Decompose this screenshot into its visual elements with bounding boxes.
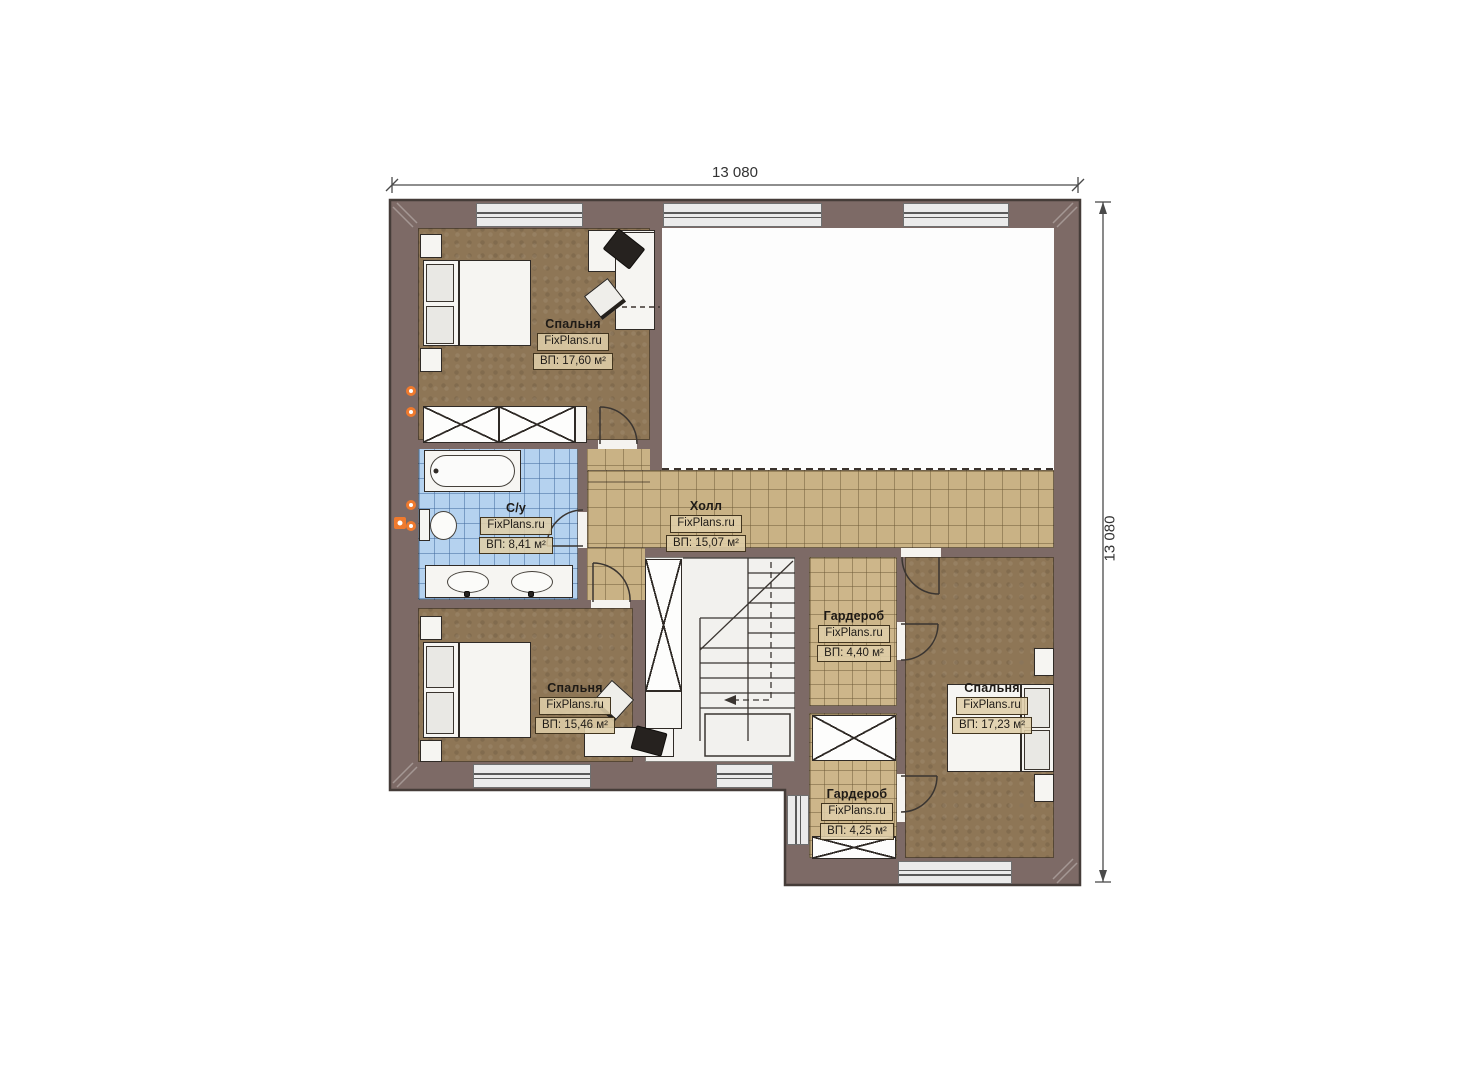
wall — [809, 548, 901, 557]
bed-blanket-line — [458, 643, 460, 737]
wall — [578, 548, 587, 608]
toilet-tank — [419, 509, 430, 541]
bathtub-basin — [430, 455, 515, 487]
door-opening — [598, 440, 637, 449]
floor-plan: 13 080 13 080 Спальня FixPlans.ru ВП: 17… — [0, 0, 1473, 1080]
wall — [578, 447, 587, 512]
shelf — [645, 691, 682, 729]
door-opening — [901, 548, 941, 557]
wardrobe-cabinet-icon — [645, 559, 682, 691]
sink — [511, 571, 553, 593]
brand-badge: FixPlans.ru — [539, 697, 611, 715]
room-label-wardrobe-upper: Гардероб FixPlans.ru ВП: 4,40 м² — [794, 609, 914, 662]
room-area: ВП: 17,60 м² — [533, 353, 613, 371]
room-label-wardrobe-lower: Гардероб FixPlans.ru ВП: 4,25 м² — [797, 787, 917, 840]
brand-badge: FixPlans.ru — [818, 625, 890, 643]
bed-pillow — [1024, 730, 1050, 770]
wall — [637, 440, 662, 449]
room-label-hall: Холл FixPlans.ru ВП: 15,07 м² — [646, 499, 766, 552]
room-label-bedroom-bottom-left: Спальня FixPlans.ru ВП: 15,46 м² — [515, 681, 635, 734]
open-void-area — [662, 228, 1054, 470]
faucet-icon — [528, 591, 534, 597]
bed-pillow — [426, 692, 454, 734]
room-area: ВП: 4,25 м² — [820, 823, 894, 841]
hall-floor-lower-stub — [587, 548, 645, 608]
brand-badge: FixPlans.ru — [537, 333, 609, 351]
wall — [941, 548, 1054, 557]
faucet-icon — [464, 591, 470, 597]
window — [716, 764, 773, 788]
room-label-bathroom: С/у FixPlans.ru ВП: 8,41 м² — [456, 501, 576, 554]
nightstand — [1034, 648, 1054, 676]
sink — [447, 571, 489, 593]
door-opening — [591, 600, 630, 608]
nightstand — [420, 616, 442, 640]
window — [898, 861, 1012, 884]
room-name: Спальня — [547, 681, 602, 695]
window — [663, 203, 822, 227]
nightstand — [420, 234, 442, 258]
bed-pillow — [426, 646, 454, 688]
wall — [418, 600, 591, 608]
room-area: ВП: 4,40 м² — [817, 645, 891, 663]
brand-badge: FixPlans.ru — [821, 803, 893, 821]
wardrobe-cabinet-icon — [812, 715, 896, 761]
bed-pillow — [426, 264, 454, 302]
hall-floor-upper-stub — [587, 447, 650, 470]
wall — [897, 660, 905, 774]
toilet-bowl — [430, 511, 457, 540]
nightstand — [1034, 774, 1054, 802]
room-area: ВП: 17,23 м² — [952, 717, 1032, 735]
room-area: ВП: 8,41 м² — [479, 537, 553, 555]
room-name: С/у — [506, 501, 526, 515]
nightstand — [420, 740, 442, 762]
room-name: Спальня — [964, 681, 1019, 695]
nightstand — [420, 348, 442, 372]
room-name: Холл — [690, 499, 722, 513]
window — [476, 203, 583, 227]
shelf — [575, 406, 587, 443]
wall — [630, 600, 645, 608]
room-area: ВП: 15,07 м² — [666, 535, 746, 553]
bed-blanket-line — [458, 261, 460, 345]
room-area: ВП: 15,46 м² — [535, 717, 615, 735]
window — [473, 764, 591, 788]
brand-badge: FixPlans.ru — [956, 697, 1028, 715]
room-name: Спальня — [545, 317, 600, 331]
bed-pillow — [426, 306, 454, 344]
room-name: Гардероб — [824, 609, 885, 623]
dimension-label-top: 13 080 — [700, 164, 770, 181]
room-label-bedroom-top-left: Спальня FixPlans.ru ВП: 17,60 м² — [513, 317, 633, 370]
wall — [795, 548, 809, 790]
wardrobe-cabinet-icon — [499, 406, 575, 443]
room-name: Гардероб — [827, 787, 888, 801]
brand-badge: FixPlans.ru — [480, 517, 552, 535]
wardrobe-cabinet-icon — [423, 406, 499, 443]
room-label-bedroom-right: Спальня FixPlans.ru ВП: 17,23 м² — [932, 681, 1052, 734]
brand-badge: FixPlans.ru — [670, 515, 742, 533]
dimension-label-right: 13 080 — [1102, 504, 1119, 574]
window — [903, 203, 1009, 227]
wall — [809, 706, 897, 713]
door-opening — [578, 512, 587, 548]
